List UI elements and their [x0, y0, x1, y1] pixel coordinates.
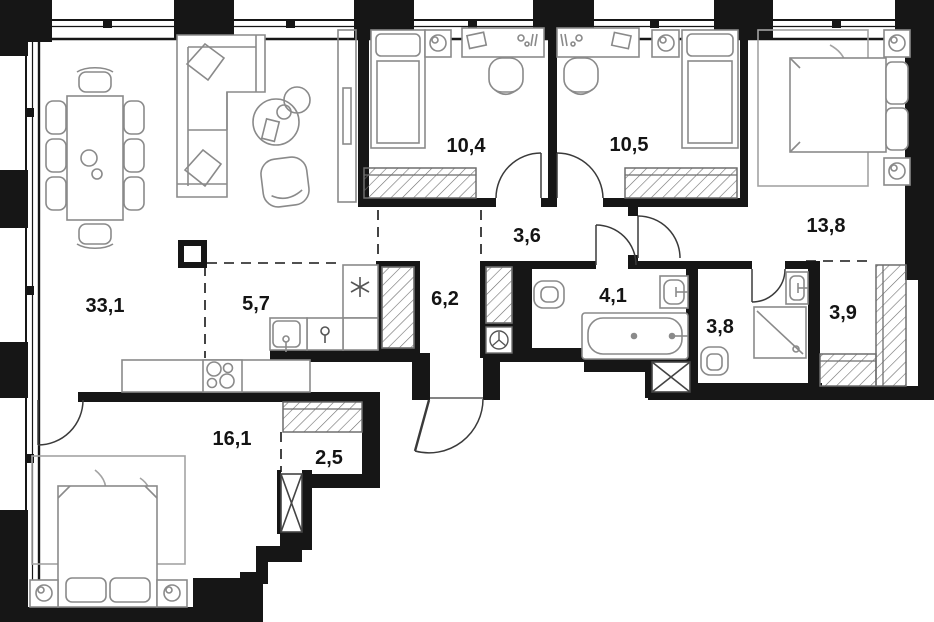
structural-column — [178, 240, 207, 268]
floor-plan: 33,1 5,7 10,4 10,5 13,8 3,6 6,2 4,1 3,8 … — [0, 0, 934, 622]
single-bed-icon — [371, 30, 425, 148]
desk-icon — [557, 28, 639, 57]
vent-shaft-icon — [652, 362, 690, 392]
room-label-kitchen: 5,7 — [242, 293, 270, 315]
entry-door — [415, 398, 483, 453]
room-label-bedroom1: 10,4 — [447, 135, 487, 157]
room-label-hall: 3,6 — [513, 225, 541, 247]
dining-table-icon — [46, 68, 144, 249]
room-label-bedroom3: 16,1 — [213, 428, 252, 450]
wardrobe-icon — [625, 168, 737, 198]
wardrobe-icon — [486, 267, 512, 323]
double-bed-icon — [790, 58, 908, 152]
room-label-closet: 2,5 — [315, 447, 343, 469]
stove-icon — [203, 360, 242, 392]
wardrobe-icon — [283, 402, 362, 432]
nightstand-lamp-icon — [884, 158, 910, 185]
door-bedroom1 — [496, 153, 541, 198]
room-label-bathroom: 4,1 — [599, 285, 627, 307]
door-bedroom3 — [38, 400, 83, 445]
kitchen-counter-icon — [122, 265, 378, 392]
floor-plan-drawing: 33,1 5,7 10,4 10,5 13,8 3,6 6,2 4,1 3,8 … — [0, 0, 934, 622]
nightstand-lamp-icon — [425, 30, 451, 57]
corner-sofa-icon — [177, 35, 265, 197]
wardrobe-icon — [382, 267, 414, 348]
shower-cabin-icon — [754, 307, 806, 358]
door-shower-room — [752, 269, 785, 302]
desk-icon — [462, 28, 544, 57]
wardrobe-icon — [876, 265, 906, 386]
desk-chair-icon — [564, 58, 598, 94]
room-label-living: 33,1 — [86, 295, 125, 317]
water-manifold-icon — [486, 327, 512, 353]
tv-console-icon — [338, 30, 356, 202]
single-bed-icon — [682, 30, 738, 148]
wardrobe-icon — [364, 168, 476, 198]
door-bedroom2 — [557, 153, 603, 198]
furniture — [30, 28, 910, 607]
desk-chair-icon — [489, 58, 523, 94]
coffee-table-icon — [253, 87, 310, 145]
wardrobe-icon — [820, 354, 876, 386]
toilet-icon — [534, 281, 564, 308]
armchair-icon — [259, 155, 311, 208]
room-label-bedroom2: 10,5 — [610, 134, 649, 156]
room-label-corridor: 6,2 — [431, 288, 459, 310]
nightstand-lamp-icon — [652, 30, 679, 57]
bathtub-icon — [582, 313, 688, 359]
room-label-master: 13,8 — [807, 215, 846, 237]
nightstand-lamp-icon — [30, 580, 58, 607]
nightstand-lamp-icon — [157, 580, 187, 607]
washbasin-icon — [660, 276, 688, 308]
vent-shaft-icon — [281, 474, 302, 532]
nightstand-lamp-icon — [884, 30, 910, 57]
double-bed-icon — [58, 486, 157, 607]
room-label-shower: 3,8 — [706, 316, 734, 338]
washbasin-icon — [786, 272, 808, 304]
room-label-wardrobe: 3,9 — [829, 302, 857, 324]
toilet-icon — [701, 347, 728, 375]
door-master — [638, 216, 680, 258]
